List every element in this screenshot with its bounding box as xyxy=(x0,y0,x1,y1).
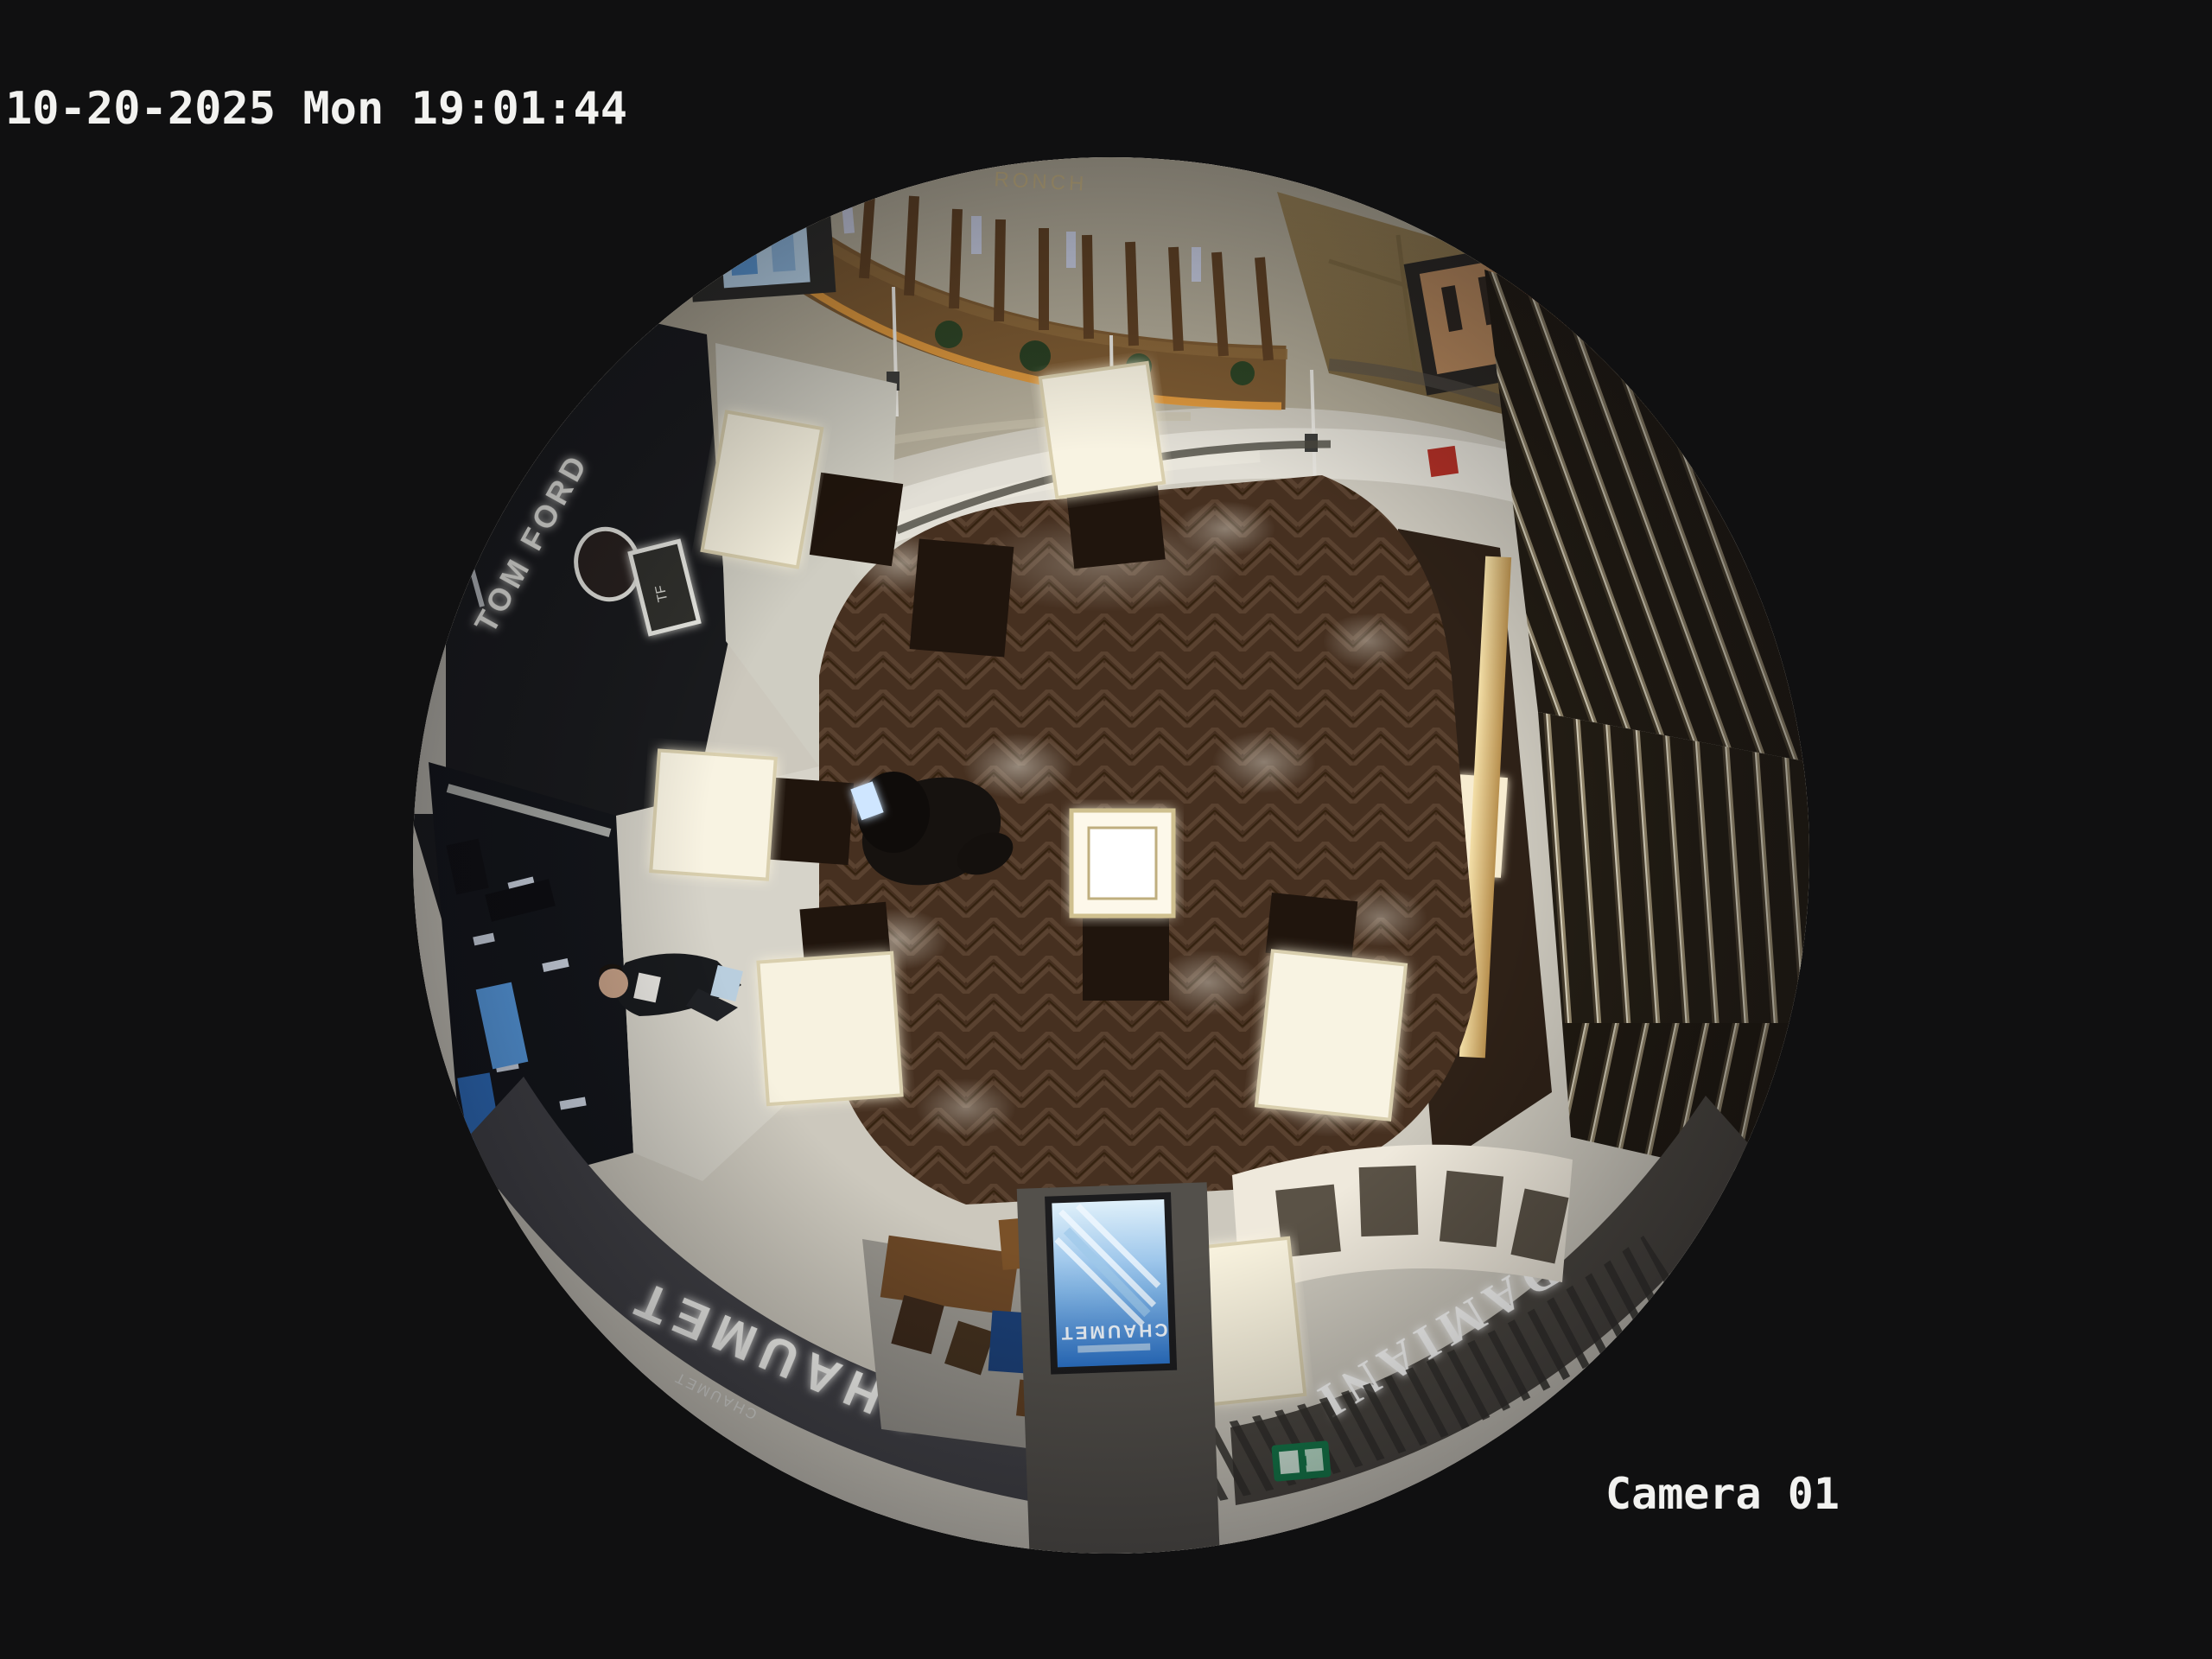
fisheye-scene: RONCH xyxy=(413,157,1809,1554)
fisheye-view: RONCH xyxy=(413,157,1809,1554)
cctv-frame: 10-20-2025 Mon 19:01:44 xyxy=(0,0,2212,1659)
osd-camera-label: Camera 01 xyxy=(1605,1469,1840,1519)
osd-timestamp: 10-20-2025 Mon 19:01:44 xyxy=(5,83,627,135)
lens-vignette xyxy=(413,157,1809,1554)
